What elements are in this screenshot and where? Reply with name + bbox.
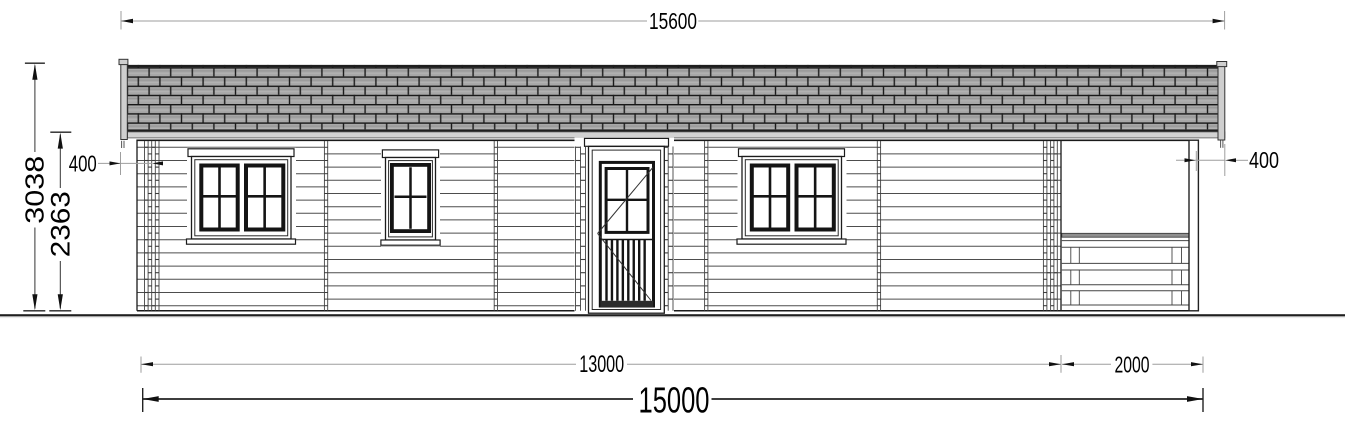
svg-text:400: 400 <box>69 151 97 177</box>
svg-text:15000: 15000 <box>639 380 710 421</box>
svg-text:15600: 15600 <box>649 8 697 34</box>
svg-text:2000: 2000 <box>1115 351 1150 377</box>
svg-text:2363: 2363 <box>46 191 76 257</box>
svg-text:400: 400 <box>1249 147 1279 173</box>
svg-text:13000: 13000 <box>579 351 624 378</box>
